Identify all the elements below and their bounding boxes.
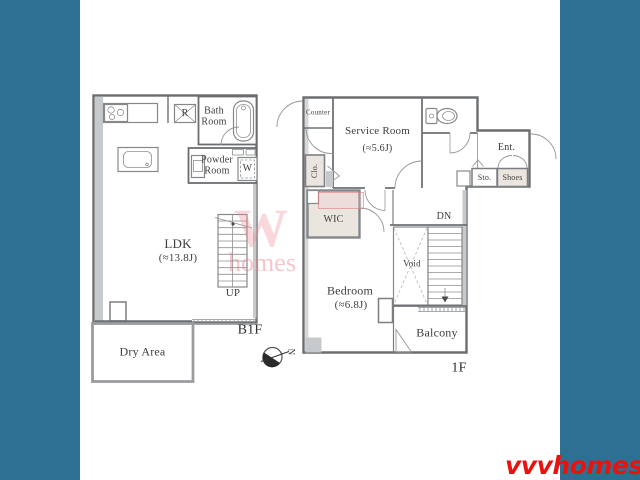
service-room-size-label: (≈5.6J) [363, 143, 393, 154]
storage-label: Sto. [478, 173, 491, 181]
void-label: Void [403, 259, 421, 268]
bedroom-label: Bedroom [327, 284, 373, 297]
bedroom-size-label: (≈6.8J) [335, 300, 368, 312]
washer-label: W [243, 164, 253, 175]
shoes-label: Shoes [502, 173, 522, 181]
closet-label: Clo. [311, 163, 319, 177]
stairs-up-label: UP [226, 288, 240, 300]
bath-line2: Room [201, 116, 226, 127]
floor-plan-image: W homes R Bath Room Powder Room W LDK (≈… [0, 0, 640, 480]
powder-line2: Room [204, 165, 229, 176]
b1f-floor-label: B1F [238, 324, 263, 339]
stairs-down-label: DN [437, 211, 452, 222]
wic-label: WIC [323, 215, 343, 226]
balcony-label: Balcony [416, 327, 457, 340]
brand-logo: vvvhomes [505, 451, 640, 480]
ldk-size-label: (≈13.8J) [159, 253, 198, 265]
f1-floor-label: 1F [451, 361, 466, 376]
service-room-label: Service Room [345, 126, 410, 138]
counter-label: Counter [306, 109, 330, 116]
entrance-label: Ent. [498, 143, 515, 154]
watermark-artifact [318, 192, 364, 209]
bath-room-label: Bath Room [201, 107, 226, 128]
powder-room-label: Powder Room [201, 156, 233, 177]
refrigerator-label: R [182, 109, 189, 120]
powder-line1: Powder [201, 155, 233, 166]
ldk-label: LDK [164, 237, 191, 251]
plan-paper [80, 0, 560, 480]
dry-area-label: Dry Area [120, 346, 166, 359]
bath-line1: Bath [204, 106, 224, 117]
watermark-homes: homes [228, 248, 296, 278]
compass-north-label: N [286, 349, 295, 356]
